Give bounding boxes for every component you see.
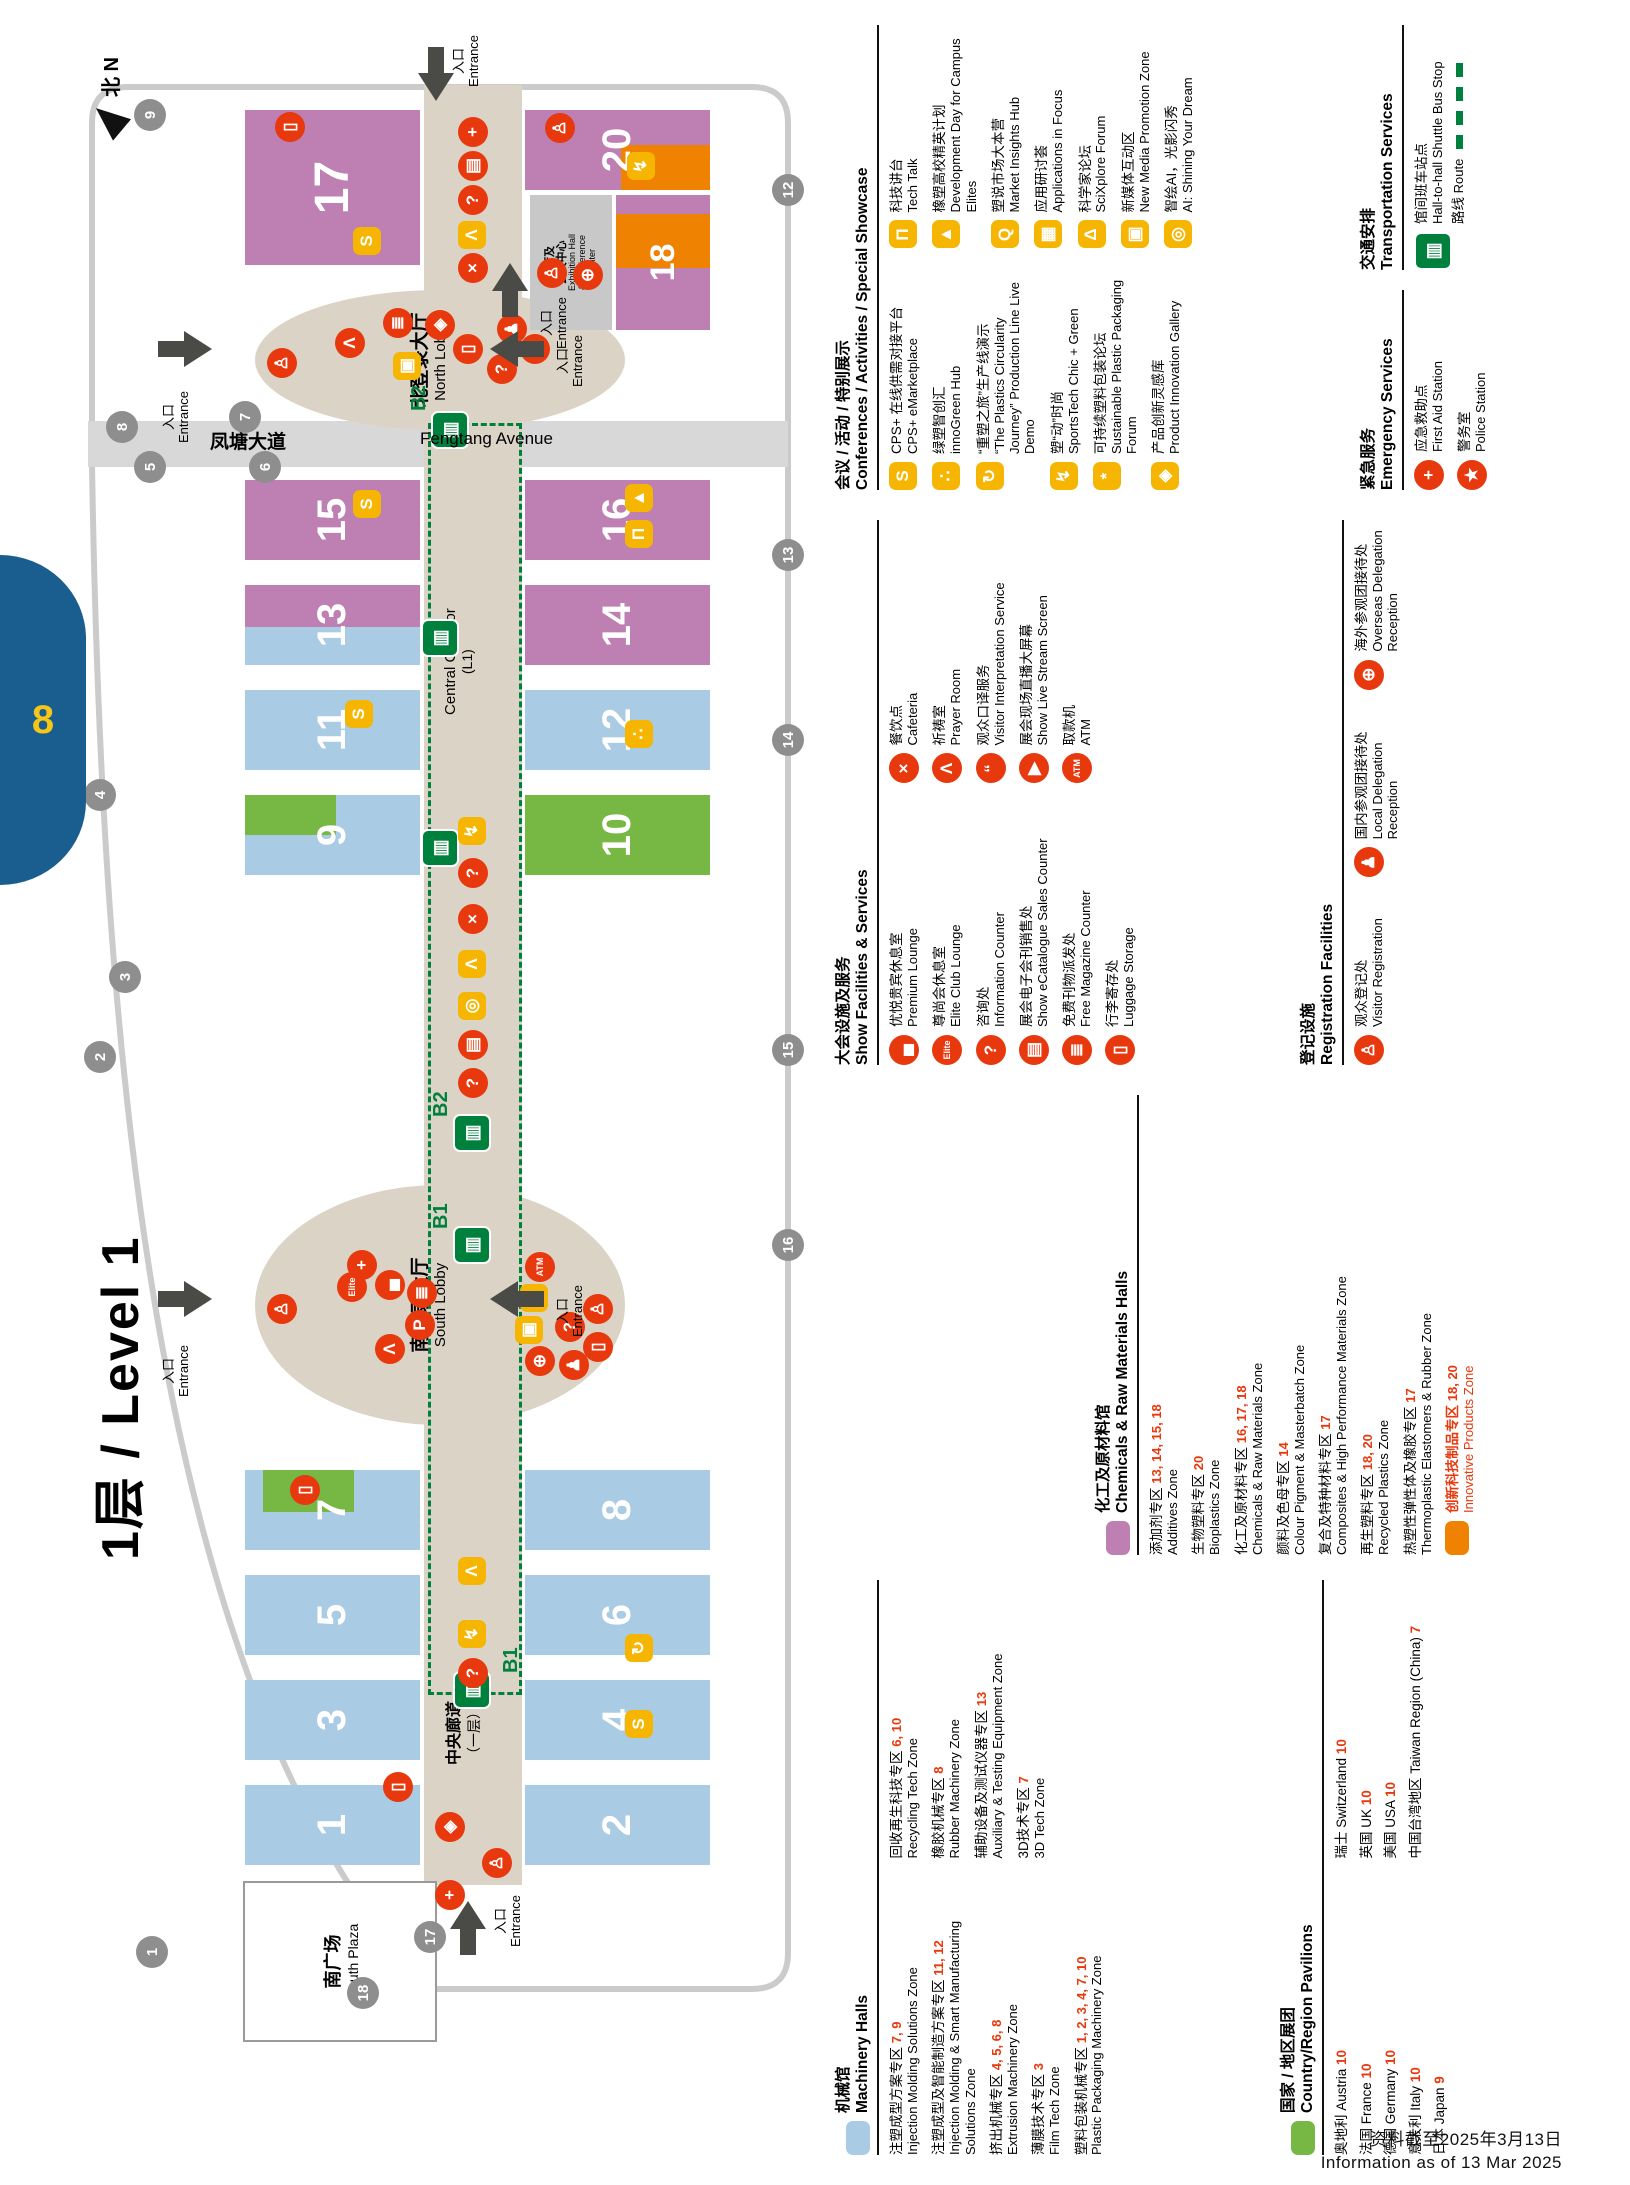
emergency-entry: ★警务室Police Station (1457, 290, 1488, 490)
country-entry-hall: 10 (1334, 1739, 1349, 1754)
zone-entry: 薄膜技术专区 3Film Tech Zone (1031, 1877, 1062, 2156)
zone-entry-halls: 4, 5, 6, 8 (989, 2020, 1004, 2071)
entrance-arrow (158, 331, 214, 367)
activity-entry-en: New Media Promotion Zone (1137, 51, 1152, 212)
facility-entry-text: 免费刊物派发处Free Magazine Counter (1062, 890, 1093, 1027)
hall-7: 7 (245, 1470, 420, 1550)
information-icon: ? (458, 185, 488, 215)
zone-entry: 注塑成型及智能制造方案专区 11, 12Injection Molding & … (931, 1877, 978, 2156)
entrance-label-zh: 入口 (494, 1895, 509, 1947)
innogreen-icon: ∴ (625, 720, 653, 748)
zone-entry: 热塑性弹性体及橡胶专区 17Thermoplastic Elastomers &… (1403, 1095, 1434, 1555)
overseas-icon: ⊕ (573, 260, 603, 290)
gate-14: 14 (772, 724, 804, 756)
activity-entry-en: SciXplore Forum (1093, 116, 1108, 213)
hall-10: 10 (525, 795, 710, 875)
activity-entry-en: Market Insights Hub (1007, 97, 1022, 213)
conference-entry-zh: 塑“动”时尚 (1050, 308, 1066, 454)
hall-number: 1 (310, 1814, 355, 1836)
prayer-room-icon: Λ (458, 1557, 486, 1585)
chemicals-items: 添加剂专区 13, 14, 15, 18Additives Zone生物塑料专区… (1149, 1095, 1434, 1555)
innogreen-icon: ∴ (932, 462, 960, 490)
ecatalogue-icon: ▤ (458, 1030, 488, 1060)
conference-entry-text: CPS+ 在线供需对接平台CPS+ eMarketplace (889, 307, 920, 454)
facility-entry-en: Prayer Room (948, 669, 963, 746)
country-entry-hall: 10 (1334, 2050, 1349, 2065)
product-innovation-icon: ◈ (435, 1812, 465, 1842)
zone-entry-halls: 6, 10 (889, 1718, 904, 1747)
registration-entry: ♟国内参观团接待处Local Delegation Reception (1354, 708, 1401, 878)
facility-entry-zh: 展会电子会刊销售处 (1019, 838, 1035, 1027)
zone-entry-zh: 3D技术专区 (1016, 1783, 1031, 1858)
shuttle-bus-stop-icon: ▥ (453, 1114, 491, 1152)
facility-entry-text: 祈祷室Prayer Room (932, 669, 963, 746)
gate-15: 15 (772, 1034, 804, 1066)
visitor-icon: ♙ (583, 1294, 613, 1324)
gate-3: 3 (109, 961, 141, 993)
facility-entry: ▄优悦贵宾休息室Premium Lounge (889, 802, 920, 1066)
country-entry-hall: 10 (1408, 2067, 1423, 2082)
shuttle-stop-label-B2: B2 (430, 1091, 453, 1117)
zone-entry: 挤出机械专区 4, 5, 6, 8Extrusion Machinery Zon… (989, 1877, 1020, 2156)
zone-entry-halls: 18, 20 (1360, 1434, 1375, 1470)
countries-col-right: 瑞士 Switzerland 10英国 UK 10美国 USA 10中国台湾地区… (1334, 1580, 1457, 1859)
country-entry-en: USA (1383, 1797, 1398, 1828)
zone-entry-en: Injection Molding & Smart Manufacturing … (947, 1877, 978, 2156)
new-media-icon: ▣ (1121, 221, 1149, 249)
facility-entry-zh: 优悦贵宾休息室 (889, 928, 905, 1027)
arrow-head (418, 73, 454, 101)
country-entry-en: Italy (1408, 2082, 1423, 2111)
registration-entry: ♙观众登记处Visitor Registration (1354, 895, 1385, 1065)
entrance-label: 入口Entrance (494, 1895, 524, 1947)
entrance-label-en: Entrance (509, 1895, 524, 1947)
facility-entry-zh: 取款机 (1062, 705, 1078, 746)
activity-entry-text: 塑说市场大本营Market Insights Hub (991, 97, 1022, 213)
activity-entry-zh: 智绘AI，光影闪秀 (1164, 77, 1180, 212)
prayer-room-icon: Λ (932, 754, 962, 784)
emergency-items: +应急救助点First Aid Station★警务室Police Statio… (1414, 290, 1489, 490)
innovative-swatch (1445, 1521, 1469, 1555)
facility-entry-text: 咨询处Information Counter (976, 912, 1007, 1027)
police-icon: ★ (1457, 460, 1487, 490)
zone-entry-zh: 颜料及色母专区 (1276, 1457, 1291, 1555)
free-magazine-icon: ≣ (383, 308, 413, 338)
zone-entry-zh: 橡胶机械专区 (931, 1774, 946, 1859)
registration-entry-zh: 观众登记处 (1354, 918, 1370, 1027)
emergency-entry-text: 警务室Police Station (1457, 373, 1488, 453)
conference-entry-zh: CPS+ 在线供需对接平台 (889, 307, 905, 454)
country-entry-hall: 7 (1408, 1626, 1423, 1634)
conference-entry: ↻“重塑之旅”生产线演示“The Plastics Circularity Jo… (976, 267, 1038, 491)
facility-entry-en: Elite Club Lounge (948, 924, 963, 1027)
zone-entry: 化工及原材料专区 16, 17, 18Chemicals & Raw Mater… (1234, 1095, 1265, 1555)
product-innovation-icon: ◈ (1151, 462, 1179, 490)
page-number: 8 (32, 698, 54, 743)
conference-entry-zh: 可持续塑料包装论坛 (1093, 267, 1109, 455)
ai-camera-icon: ◎ (458, 992, 486, 1020)
conference-entry: ∴绿塑智创汇innoGreen Hub (932, 267, 963, 491)
gate-7: 7 (229, 401, 261, 433)
facility-entry: ×餐饮点Cafeteria (889, 520, 920, 784)
zone-entry-en: Film Tech Zone (1047, 1877, 1062, 2156)
hall-number: 15 (310, 498, 355, 543)
shuttle-stop-label-B1: B1 (430, 1203, 453, 1229)
section-chemicals: 化工及原材料馆Chemicals & Raw Materials Halls 添… (1095, 1095, 1487, 1555)
country-entry-hall: 9 (1432, 2076, 1447, 2084)
innovative-zone-label: 创新科技制品专区 18, 20 Innovative Products Zone (1445, 1365, 1476, 1513)
hall-18: 18 (616, 195, 710, 330)
section-registration: 登记设施Registration Facilities ♙观众登记处Visito… (1300, 520, 1413, 1065)
landscape-stage: 1层 / Level 1 北 N 凤塘大道 Fengtang Avenue 北登… (0, 0, 1630, 2185)
conference-entry: ◈产品创新灵感库Product Innovation Gallery (1151, 267, 1182, 491)
prayer-room-icon: Λ (375, 1334, 405, 1364)
zone-entry-halls: 11, 12 (931, 1940, 946, 1975)
zone-entry: 生物塑料专区 20Bioplastics Zone (1191, 1095, 1222, 1555)
activity-entry-zh: 塑说市场大本营 (991, 97, 1007, 213)
hall-number: 5 (310, 1604, 355, 1626)
facility-entry-en: Visitor Interpretation Service (992, 582, 1007, 745)
zone-entry-en: Chemicals & Raw Materials Zone (1250, 1095, 1265, 1555)
countries-col-left: 奥地利 Austria 10法国 France 10德国 Germany 10意… (1334, 1877, 1457, 2156)
machinery-col-right: 回收再生科技专区 6, 10Recycling Tech Zone橡胶机械专区 … (889, 1580, 1116, 1859)
zone-entry-halls: 20 (1191, 1456, 1206, 1470)
arrow-stem (516, 1291, 544, 1307)
arrow-stem (502, 289, 518, 317)
interpretation-icon: “ (976, 754, 1006, 784)
visitor-icon: ♙ (537, 258, 567, 288)
emergency-entry-en: First Aid Station (1430, 361, 1445, 452)
zone-entry-zh: 化工及原材料专区 (1234, 1443, 1249, 1555)
cafeteria-icon: × (458, 904, 488, 934)
registration-entry-wrap: ♟国内参观团接待处Local Delegation Reception (1354, 708, 1413, 878)
facility-entry: ▯行李寄存处Luggage Storage (1105, 802, 1136, 1066)
arrow-head (450, 1901, 486, 1929)
activity-entry-en: Development Day for Campus Elites (948, 25, 979, 213)
activity-entry-text: 橡塑高校精英计划Development Day for Campus Elite… (932, 25, 979, 213)
hall-6: 6 (525, 1575, 710, 1655)
premium-lounge-icon: ▄ (889, 1035, 919, 1065)
gate-4: 4 (84, 779, 116, 811)
activity-entry-text: 智绘AI，光影闪秀AI: Shining Your Dream (1164, 77, 1195, 212)
activity-entry-en: Applications in Focus (1050, 90, 1065, 213)
conference-entry-text: 塑“动”时尚SportsTech Chic + Green (1050, 308, 1081, 454)
hall-number: 10 (595, 813, 640, 858)
conference-entry-en: Product Innovation Gallery (1167, 301, 1182, 454)
entrance-label-zh: 入口 (162, 391, 177, 443)
country-entry-hall: 10 (1359, 1790, 1374, 1805)
arrow-head (184, 331, 212, 367)
route-dash-icon (1456, 63, 1463, 149)
applications-icon: ▦ (1034, 221, 1062, 249)
facility-entry-en: Luggage Storage (1121, 927, 1136, 1027)
section-machinery: 机械馆Machinery Halls 注塑成型方案专区 7, 9Injectio… (835, 1580, 1116, 2155)
overseas-icon: ⊕ (525, 1346, 555, 1376)
zone-entry-en: Injection Molding Solutions Zone (905, 1877, 920, 2156)
arrow-head (490, 331, 518, 367)
registration-entry-en: Overseas Delegation Reception (1370, 520, 1401, 652)
campus-icon: ▲ (932, 221, 960, 249)
hall-3: 3 (245, 1680, 420, 1760)
hall-2: 2 (525, 1785, 710, 1865)
activity-entry: Q塑说市场大本营Market Insights Hub (991, 25, 1022, 249)
hall-8: 8 (525, 1470, 710, 1550)
country-entry: 德国 Germany 10 (1383, 1877, 1399, 2156)
gate-1: 1 (136, 1936, 168, 1968)
zone-entry-halls: 13, 14, 15, 18 (1149, 1404, 1164, 1484)
zone-entry: 回收再生科技专区 6, 10Recycling Tech Zone (889, 1580, 920, 1859)
product-innovation-icon: ◈ (425, 310, 455, 340)
country-entry: 日本 Japan 9 (1432, 1877, 1448, 2156)
conference-entry-en: innoGreen Hub (948, 366, 963, 454)
activity-entry: Δ科学家论坛SciXplore Forum (1078, 25, 1109, 249)
information-icon: ? (458, 858, 488, 888)
zone-entry-halls: 14 (1276, 1442, 1291, 1456)
cafeteria-icon: × (889, 754, 919, 784)
new-media-icon: ▣ (393, 352, 421, 380)
s-mark-icon: S (353, 227, 381, 255)
live-stream-icon: ▶ (1019, 754, 1049, 784)
avenue-label-en: Fengtang Avenue (420, 429, 553, 449)
zone-entry-en: Recycling Tech Zone (905, 1580, 920, 1859)
hall-13: 13 (245, 585, 420, 665)
shuttle-stop-label-B1: B1 (500, 1647, 523, 1673)
prayer-room-icon: Λ (458, 950, 486, 978)
facility-entry-zh: 祈祷室 (932, 669, 948, 746)
registration-entry-wrap: ♙观众登记处Visitor Registration (1354, 895, 1413, 1065)
zone-entry-zh: 回收再生科技专区 (889, 1747, 904, 1859)
facility-entry-zh: 观众口译服务 (976, 582, 992, 745)
country-entry: 法国 France 10 (1359, 1877, 1375, 2156)
registration-entry-zh: 海外参观团接待处 (1354, 520, 1370, 652)
emergency-entry-en: Police Station (1473, 373, 1488, 453)
hall-number: 18 (644, 244, 683, 282)
entrance-arrow (488, 331, 544, 367)
facility-entry-zh: 免费刊物派发处 (1062, 890, 1078, 1027)
zone-entry-halls: 16, 17, 18 (1234, 1385, 1249, 1443)
hall-4: 4 (525, 1680, 710, 1760)
luggage-icon: ▯ (290, 1475, 320, 1505)
hall-11: 11 (245, 690, 420, 770)
innovative-zone-row: 创新科技制品专区 18, 20 Innovative Products Zone (1445, 1095, 1487, 1555)
hall-number: 14 (595, 603, 640, 648)
entrance-label-en: Entrance (177, 1345, 192, 1397)
country-entry-zh: 瑞士 (1334, 1828, 1349, 1859)
page-tab: 8 (0, 555, 86, 885)
country-entry-hall: 10 (1383, 2050, 1398, 2065)
emergency-entry-zh: 应急救助点 (1414, 361, 1430, 452)
overseas-icon: ⊕ (1354, 660, 1384, 690)
zone-entry-zh: 注塑成型方案专区 (889, 2043, 904, 2155)
facility-entry-text: 尊尚会休息室Elite Club Lounge (932, 924, 963, 1027)
zone-entry-zh: 挤出机械专区 (989, 2070, 1004, 2155)
conferences-col-right: Π科技讲台Tech Talk▲橡塑高校精英计划Development Day f… (889, 25, 1207, 249)
zone-entry-halls: 3 (1031, 2063, 1046, 2070)
delegation-icon: ♟ (1354, 847, 1384, 877)
visitor-icon: ♙ (267, 348, 297, 378)
scixplore-icon: Δ (1078, 221, 1106, 249)
ecatalogue-icon: ▤ (1019, 1035, 1049, 1065)
shuttle-bus-stop-icon: ▥ (453, 1226, 491, 1264)
sports-icon: ↯ (458, 1620, 486, 1648)
activity-entry-zh: 新媒体互动区 (1121, 51, 1137, 212)
zone-entry-halls: 13 (974, 1692, 989, 1706)
section-facilities: 大会设施及服务Show Facilities & Services ▄优悦贵宾休… (835, 520, 1149, 1065)
circularity-icon: ↻ (625, 1634, 653, 1662)
country-entry-en: Germany (1383, 2065, 1398, 2124)
country-entry-en: France (1359, 2078, 1374, 2124)
activity-entry: ▣新媒体互动区New Media Promotion Zone (1121, 25, 1152, 249)
activity-entry-zh: 应用研讨荟 (1034, 90, 1050, 213)
atm-icon: ATM (1062, 754, 1092, 784)
countries-swatch (1291, 2121, 1315, 2155)
entrance-arrow (158, 1281, 214, 1317)
section-transportation: 交通安排Transportation Services ▥ 馆间班车站点 Hal… (1360, 25, 1479, 270)
facility-entry-zh: 餐饮点 (889, 693, 905, 746)
conference-entry-text: “重塑之旅”生产线演示“The Plastics Circularity Jou… (976, 267, 1038, 455)
country-entry-en: Austria (1334, 2065, 1349, 2111)
compass-label: 北 N (95, 57, 124, 97)
facility-entry-zh: 咨询处 (976, 912, 992, 1027)
visitor-icon: ♙ (1354, 1035, 1384, 1065)
conference-entry-en: CPS+ eMarketplace (905, 307, 920, 454)
gate-9: 9 (134, 99, 166, 131)
press-icon: P (405, 1310, 435, 1340)
facility-entry-zh: 尊尚会休息室 (932, 924, 948, 1027)
facility-entry-en: Show eCatalogue Sales Counter (1035, 838, 1050, 1027)
zone-entry-zh: 注塑成型及智能制造方案专区 (931, 1976, 946, 2155)
conference-entry-text: 产品创新灵感库Product Innovation Gallery (1151, 301, 1182, 454)
info-date-zh: 资料截至2025年3月13日 (1321, 2129, 1562, 2152)
gate-8: 8 (106, 411, 138, 443)
entrance-label-zh: 入口 (556, 1285, 571, 1337)
activity-entry-text: 科学家论坛SciXplore Forum (1078, 116, 1109, 213)
emergency-entry: +应急救助点First Aid Station (1414, 290, 1445, 490)
facility-entry-en: Premium Lounge (905, 928, 920, 1027)
sports-icon: ↯ (627, 152, 655, 180)
zone-entry-en: Additives Zone (1165, 1095, 1180, 1555)
luggage-icon: ▯ (453, 334, 483, 364)
prayer-room-icon: Λ (335, 328, 365, 358)
emergency-entry-zh: 警务室 (1457, 373, 1473, 453)
hall-number: 6 (595, 1604, 640, 1626)
entrance-label: 入口Entrance (162, 391, 192, 443)
entrance-arrow (488, 1281, 544, 1317)
entrance-arrow (418, 47, 454, 103)
atm-icon: ATM (525, 1252, 555, 1282)
conference-entry-text: 绿塑智创汇innoGreen Hub (932, 366, 963, 454)
activity-entry: ▲橡塑高校精英计划Development Day for Campus Elit… (932, 25, 979, 249)
facility-entry-en: Free Magazine Counter (1078, 890, 1093, 1027)
conference-entry-en: SportsTech Chic + Green (1066, 308, 1081, 454)
info-date-en: Information as of 13 Mar 2025 (1321, 2152, 1562, 2175)
zone-entry-zh: 生物塑料专区 (1191, 1470, 1206, 1555)
zone-entry: 3D技术专区 73D Tech Zone (1016, 1580, 1047, 1859)
cafeteria-icon: × (458, 253, 488, 283)
facility-entry-text: 优悦贵宾休息室Premium Lounge (889, 928, 920, 1027)
info-date: 资料截至2025年3月13日 Information as of 13 Mar … (1321, 2129, 1562, 2175)
campus-icon: ▲ (625, 484, 653, 512)
registration-items: ♙观众登记处Visitor Registration♟国内参观团接待处Local… (1354, 520, 1413, 1065)
shuttle-stop-entry: ▥ 馆间班车站点 Hall-to-hall Shuttle Bus Stop 路… (1414, 25, 1467, 270)
registration-entry-en: Local Delegation Reception (1370, 708, 1401, 840)
section-conferences: 会议 / 活动 / 特别展示Conferences / Activities /… (835, 25, 1207, 490)
registration-entry: ⊕海外参观团接待处Overseas Delegation Reception (1354, 520, 1401, 690)
activity-entry-text: 科技讲台Tech Talk (889, 159, 920, 213)
first-aid-icon: + (458, 117, 488, 147)
gate-16: 16 (772, 1229, 804, 1261)
gate-18: 18 (347, 1977, 379, 2009)
zone-entry-en: Composites & High Performance Materials … (1334, 1095, 1349, 1555)
entrance-label: 入口Entrance (162, 1345, 192, 1397)
information-icon: ? (458, 1658, 488, 1688)
registration-entry-text: 国内参观团接待处Local Delegation Reception (1354, 708, 1401, 840)
shuttle-stop-label-B2: B2 (408, 385, 431, 411)
activity-entry-en: Tech Talk (905, 159, 920, 213)
luggage-icon: ▯ (583, 1332, 613, 1362)
country-entry: 美国 USA 10 (1383, 1580, 1399, 1859)
facility-entry-en: Cafeteria (905, 693, 920, 746)
floor-map: 1层 / Level 1 北 N 凤塘大道 Fengtang Avenue 北登… (0, 0, 810, 2185)
facility-entry: ▶展会现场直播大屏幕Show Live Stream Screen (1019, 520, 1050, 784)
prayer-room-icon: Λ (458, 221, 486, 249)
arrow-head (184, 1281, 212, 1317)
country-entry-en: Japan (1432, 2084, 1447, 2125)
hall-14: 14 (525, 585, 710, 665)
country-entry-hall: 10 (1359, 2063, 1374, 2078)
facility-entry-zh: 展会现场直播大屏幕 (1019, 595, 1035, 745)
ai-camera-icon: ◎ (1164, 221, 1192, 249)
hall-12: 12 (525, 690, 710, 770)
compass: 北 N (92, 57, 126, 133)
zone-entry-en: Rubber Machinery Zone (947, 1580, 962, 1859)
zone-entry-zh: 薄膜技术专区 (1031, 2070, 1046, 2155)
facility-entry: ▤展会电子会刊销售处Show eCatalogue Sales Counter (1019, 802, 1050, 1066)
gate-2: 2 (84, 1041, 116, 1073)
conference-entry: *可持续塑料包装论坛Sustainable Plastic Packaging … (1093, 267, 1140, 491)
gate-5: 5 (134, 451, 166, 483)
conference-entry-zh: 产品创新灵感库 (1151, 301, 1167, 454)
tech-talk-icon: Π (889, 221, 917, 249)
facility-entry: “观众口译服务Visitor Interpretation Service (976, 520, 1007, 784)
hall-number: 7 (310, 1499, 355, 1521)
tech-talk-icon: Π (625, 520, 653, 548)
zone-entry-en: Bioplastics Zone (1207, 1095, 1222, 1555)
country-entry: 中国台湾地区 Taiwan Region (China) 7 (1408, 1580, 1424, 1859)
zone-entry-halls: 17 (1318, 1415, 1333, 1429)
elite-club-icon: Elite (932, 1035, 962, 1065)
arrow-head (490, 1281, 518, 1317)
activity-entry-zh: 橡塑高校精英计划 (932, 25, 948, 213)
visitor-icon: ♙ (267, 1294, 297, 1324)
activity-entry: ◎智绘AI，光影闪秀AI: Shining Your Dream (1164, 25, 1195, 249)
zone-entry-halls: 7 (1016, 1776, 1031, 1783)
facility-entry-text: 展会电子会刊销售处Show eCatalogue Sales Counter (1019, 838, 1050, 1027)
route-entry: 路线 Route (1451, 61, 1467, 224)
zone-entry: 颜料及色母专区 14Colour Pigment & Masterbatch Z… (1276, 1095, 1307, 1555)
zone-entry-en: Extrusion Machinery Zone (1005, 1877, 1020, 2156)
conferences-col-left: SCPS+ 在线供需对接平台CPS+ eMarketplace∴绿塑智创汇inn… (889, 267, 1207, 491)
hall-16: 16 (525, 480, 710, 560)
zone-entry-zh: 辅助设备及测试仪器专区 (974, 1706, 989, 1858)
entrance-label: 入口Entrance (556, 1285, 586, 1337)
elite-club-icon: Elite (337, 1272, 367, 1302)
zone-entry: 再生塑料专区 18, 20Recycled Plastics Zone (1360, 1095, 1391, 1555)
s-mark-icon: S (625, 1710, 653, 1738)
s-mark-icon: S (345, 700, 373, 728)
zone-entry-en: 3D Tech Zone (1032, 1580, 1047, 1859)
information-icon: ? (976, 1035, 1006, 1065)
